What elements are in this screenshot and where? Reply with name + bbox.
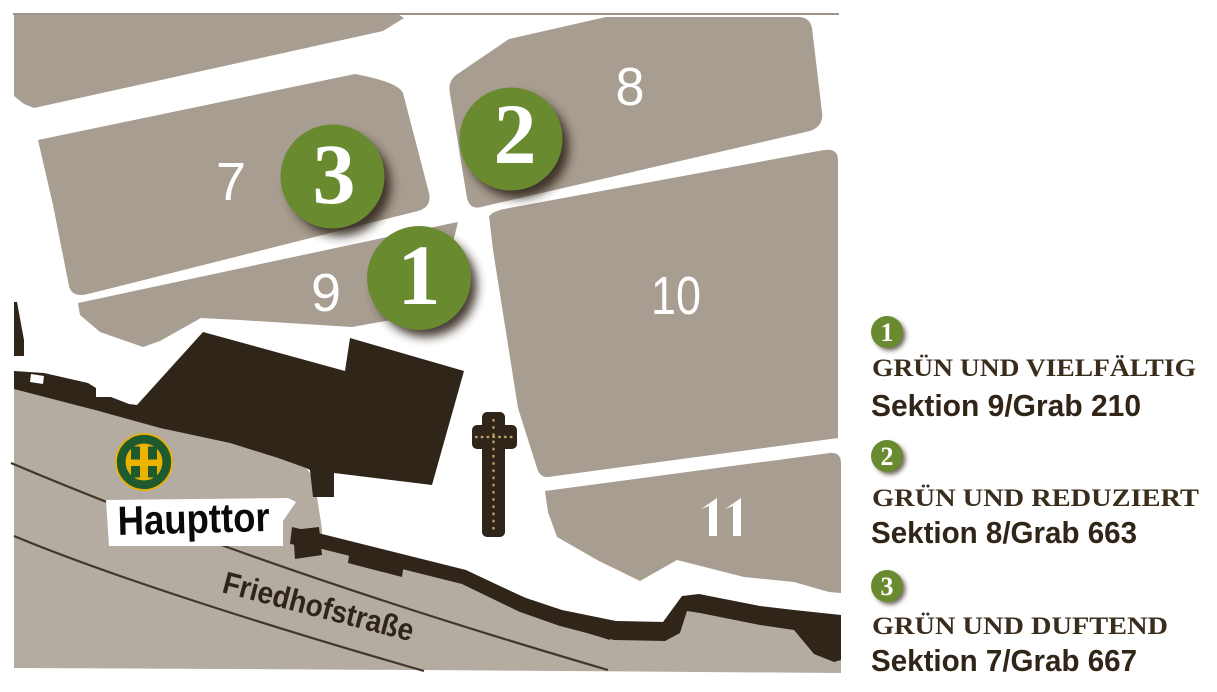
svg-text:9: 9 [311,263,341,323]
svg-text:2: 2 [494,86,537,182]
svg-text:GRÜN UND DUFTEND: GRÜN UND DUFTEND [872,613,1168,640]
svg-text:GRÜN UND VIELFÄLTIG: GRÜN UND VIELFÄLTIG [872,355,1196,382]
svg-text:1: 1 [881,318,894,347]
svg-text:Sektion 7/Grab 667: Sektion 7/Grab 667 [871,643,1137,678]
svg-text:Haupttor: Haupttor [117,494,270,544]
svg-text:2: 2 [881,442,894,471]
svg-text:10: 10 [651,266,701,326]
svg-text:Sektion 8/Grab 663: Sektion 8/Grab 663 [871,515,1137,550]
svg-text:3: 3 [881,572,894,601]
svg-text:3: 3 [313,126,356,222]
svg-text:Sektion 9/Grab 210: Sektion 9/Grab 210 [871,388,1141,423]
svg-text:GRÜN UND REDUZIERT: GRÜN UND REDUZIERT [872,485,1199,512]
svg-text:8: 8 [616,57,645,117]
svg-text:7: 7 [216,152,246,212]
svg-text:1: 1 [398,227,441,323]
